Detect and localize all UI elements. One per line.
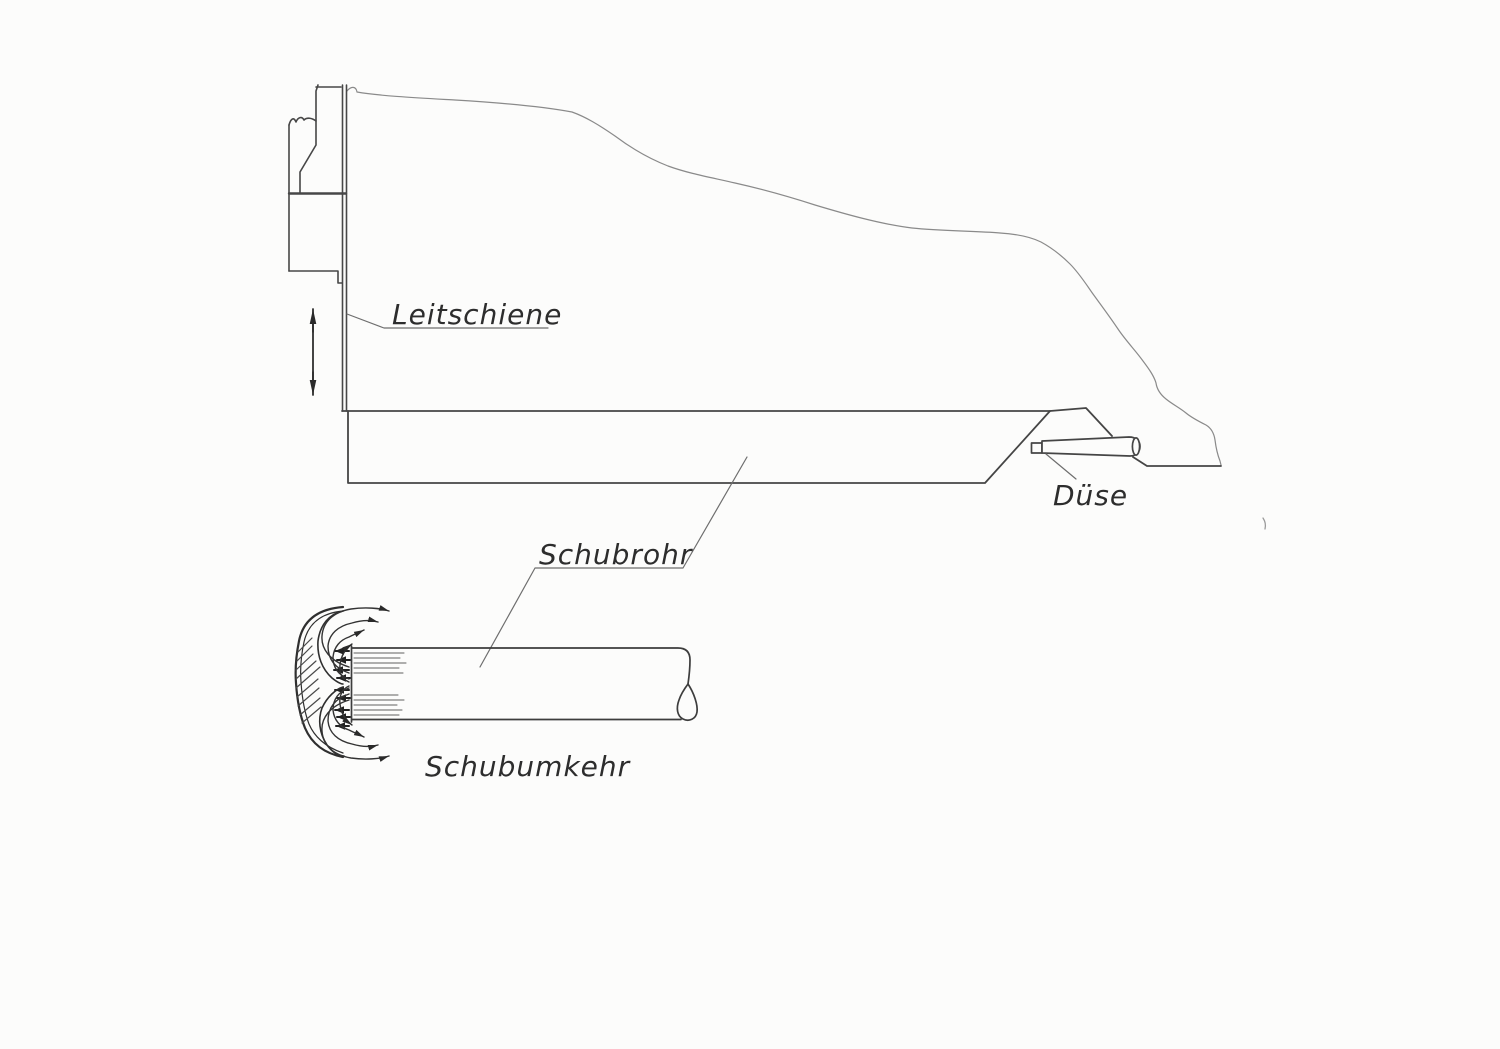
label-leitschiene: Leitschiene <box>392 298 562 331</box>
hull-bottom-upper-line <box>342 408 1112 436</box>
scan-artifact-mark <box>1263 518 1265 529</box>
tube-break-droplet <box>677 684 697 720</box>
thrust-reverser-detail <box>296 607 698 759</box>
nozzle-exit-opening <box>1132 438 1139 455</box>
label-duese: Düse <box>1053 479 1128 512</box>
hull-step-behind-nozzle <box>1133 457 1221 466</box>
thrust-tube <box>352 646 698 722</box>
nozzle <box>1032 437 1141 456</box>
guide-rail <box>343 85 347 411</box>
deflected-jet-streamlines <box>322 608 389 759</box>
duese-leader <box>1046 454 1076 479</box>
jet-flow-lines <box>354 653 406 715</box>
rail-carriage-bracket <box>289 85 346 283</box>
hull-outline-path <box>347 87 1221 465</box>
diagram-page: Leitschiene Schubrohr Düse Schubumkehr <box>0 0 1500 1049</box>
label-schubrohr: Schubrohr <box>539 538 693 571</box>
nozzle-attach-block <box>1032 443 1043 453</box>
label-schubumkehr: Schubumkehr <box>425 750 631 783</box>
transom-diagonal <box>348 411 1050 483</box>
bracket-notched-top <box>289 118 316 125</box>
nozzle-cone <box>1042 437 1140 456</box>
leader-lines <box>347 314 1076 667</box>
stern-side-view <box>289 85 1221 667</box>
technical-sketch: Leitschiene Schubrohr Düse Schubumkehr <box>0 0 1500 1049</box>
